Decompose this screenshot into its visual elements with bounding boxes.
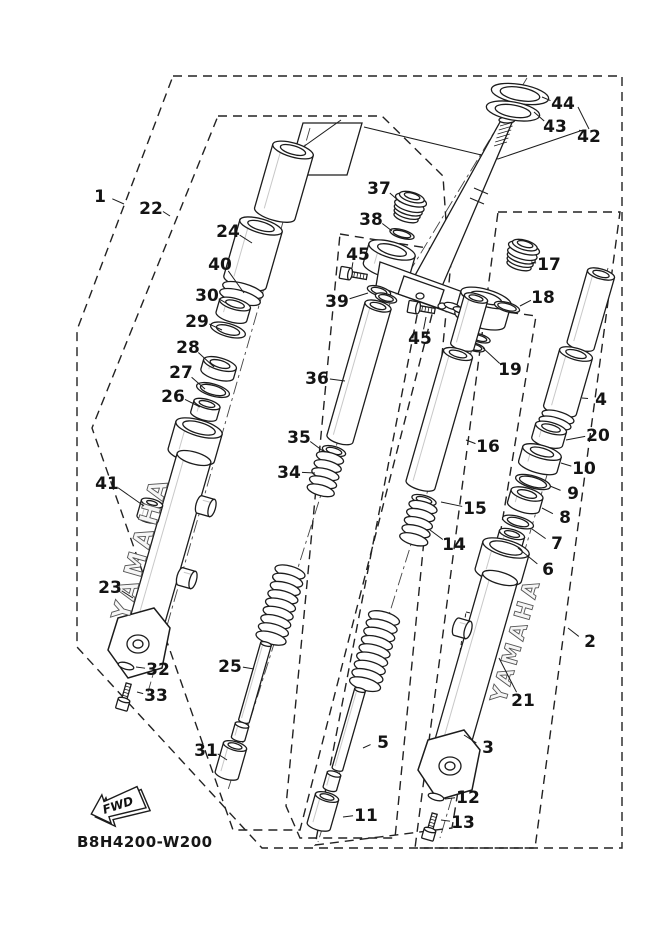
oil-lock-31 bbox=[214, 738, 248, 782]
diagram-canvas: YAMAHAYAMAHA1222440302928272641233233312… bbox=[0, 0, 661, 935]
svg-text:21: 21 bbox=[511, 691, 535, 711]
svg-text:43: 43 bbox=[543, 117, 567, 137]
part-label-7: 7 bbox=[532, 529, 563, 554]
svg-text:9: 9 bbox=[567, 484, 579, 504]
part-label-22: 22 bbox=[139, 199, 170, 219]
part-label-9: 9 bbox=[550, 484, 579, 504]
svg-text:20: 20 bbox=[586, 426, 610, 446]
part-label-45a: 45 bbox=[346, 245, 370, 268]
svg-text:23: 23 bbox=[98, 578, 122, 598]
svg-text:17: 17 bbox=[537, 255, 561, 275]
svg-text:5: 5 bbox=[377, 733, 389, 753]
spacer-4 bbox=[542, 344, 594, 420]
part-label-5: 5 bbox=[363, 733, 389, 753]
svg-text:35: 35 bbox=[287, 428, 311, 448]
part-label-26: 26 bbox=[161, 387, 200, 407]
part-label-38: 38 bbox=[359, 210, 392, 231]
svg-text:38: 38 bbox=[359, 210, 383, 230]
crown-hole-a bbox=[416, 293, 424, 299]
part-label-1: 1 bbox=[94, 187, 124, 207]
svg-text:15: 15 bbox=[463, 499, 487, 519]
svg-text:7: 7 bbox=[551, 534, 563, 554]
svg-text:28: 28 bbox=[176, 338, 200, 358]
fork-parts-diagram: YAMAHAYAMAHA1222440302928272641233233312… bbox=[0, 0, 661, 935]
svg-text:41: 41 bbox=[95, 474, 119, 494]
part-label-18: 18 bbox=[520, 288, 555, 308]
svg-text:27: 27 bbox=[169, 363, 193, 383]
clip-27 bbox=[195, 380, 231, 401]
svg-text:4: 4 bbox=[595, 390, 607, 410]
cap-cylinder-left bbox=[253, 137, 315, 225]
drawing-number: B8H4200-W200 bbox=[77, 833, 213, 851]
svg-text:8: 8 bbox=[559, 508, 571, 528]
part-label-33: 33 bbox=[137, 686, 168, 706]
part-label-15: 15 bbox=[441, 499, 487, 519]
part-label-42: 42 bbox=[577, 127, 601, 147]
oil-lock-11 bbox=[306, 789, 340, 833]
part-label-36: 36 bbox=[305, 369, 345, 389]
svg-text:10: 10 bbox=[572, 459, 596, 479]
part-label-16: 16 bbox=[466, 437, 500, 457]
svg-text:45: 45 bbox=[408, 329, 432, 349]
part-label-20: 20 bbox=[566, 426, 610, 446]
part-label-45b: 45 bbox=[408, 317, 432, 349]
svg-text:19: 19 bbox=[498, 360, 522, 380]
rod-25-tip bbox=[231, 721, 250, 743]
damper-rod-25 bbox=[238, 641, 272, 725]
part-label-4: 4 bbox=[582, 390, 607, 410]
svg-text:37: 37 bbox=[367, 179, 391, 199]
svg-text:26: 26 bbox=[161, 387, 185, 407]
svg-text:34: 34 bbox=[277, 463, 301, 483]
svg-text:44: 44 bbox=[551, 94, 575, 114]
svg-text:3: 3 bbox=[482, 738, 494, 758]
svg-text:29: 29 bbox=[185, 312, 209, 332]
fwd-arrow: FWD bbox=[87, 782, 152, 832]
part-label-11: 11 bbox=[343, 806, 378, 826]
part-label-37: 37 bbox=[367, 179, 400, 202]
part-label-25: 25 bbox=[218, 657, 254, 677]
oring-38 bbox=[389, 227, 415, 242]
svg-text:16: 16 bbox=[476, 437, 500, 457]
leader-44-42 bbox=[578, 107, 589, 129]
svg-text:36: 36 bbox=[305, 369, 329, 389]
cap-bolt-17 bbox=[502, 236, 541, 274]
part-label-35: 35 bbox=[287, 428, 323, 451]
svg-text:18: 18 bbox=[531, 288, 555, 308]
svg-text:6: 6 bbox=[542, 560, 554, 580]
part-label-14: 14 bbox=[430, 530, 466, 555]
9 bbox=[348, 608, 401, 695]
svg-text:24: 24 bbox=[216, 222, 240, 242]
svg-text:1: 1 bbox=[94, 187, 106, 207]
cap-bolt-37 bbox=[389, 188, 428, 226]
part-label-43: 43 bbox=[534, 112, 567, 137]
svg-text:32: 32 bbox=[146, 660, 170, 680]
inner-tube-36 bbox=[326, 297, 393, 447]
svg-text:12: 12 bbox=[456, 788, 480, 808]
part-label-2: 2 bbox=[568, 628, 596, 652]
svg-text:33: 33 bbox=[144, 686, 168, 706]
part-label-10: 10 bbox=[561, 459, 596, 479]
svg-text:2: 2 bbox=[584, 632, 596, 652]
part-label-19: 19 bbox=[483, 348, 522, 380]
svg-text:14: 14 bbox=[442, 535, 466, 555]
svg-text:45: 45 bbox=[346, 245, 370, 265]
drain-bolt-13 bbox=[421, 812, 440, 841]
rod-5-tip bbox=[322, 770, 341, 793]
part-label-39: 39 bbox=[325, 292, 368, 312]
svg-text:25: 25 bbox=[218, 657, 242, 677]
pinch-bolt-45a bbox=[339, 266, 368, 283]
svg-text:13: 13 bbox=[451, 813, 475, 833]
part-label-41: 41 bbox=[95, 474, 144, 506]
9 bbox=[255, 562, 307, 648]
5 bbox=[306, 449, 345, 499]
svg-text:40: 40 bbox=[208, 255, 232, 275]
svg-text:11: 11 bbox=[354, 806, 378, 826]
part-label-8: 8 bbox=[542, 508, 571, 528]
svg-text:39: 39 bbox=[325, 292, 349, 312]
5 bbox=[398, 498, 438, 549]
svg-text:22: 22 bbox=[139, 199, 163, 219]
cap-cylinder-right bbox=[566, 265, 616, 353]
svg-text:31: 31 bbox=[194, 741, 218, 761]
svg-text:42: 42 bbox=[577, 127, 601, 147]
svg-text:30: 30 bbox=[195, 286, 219, 306]
